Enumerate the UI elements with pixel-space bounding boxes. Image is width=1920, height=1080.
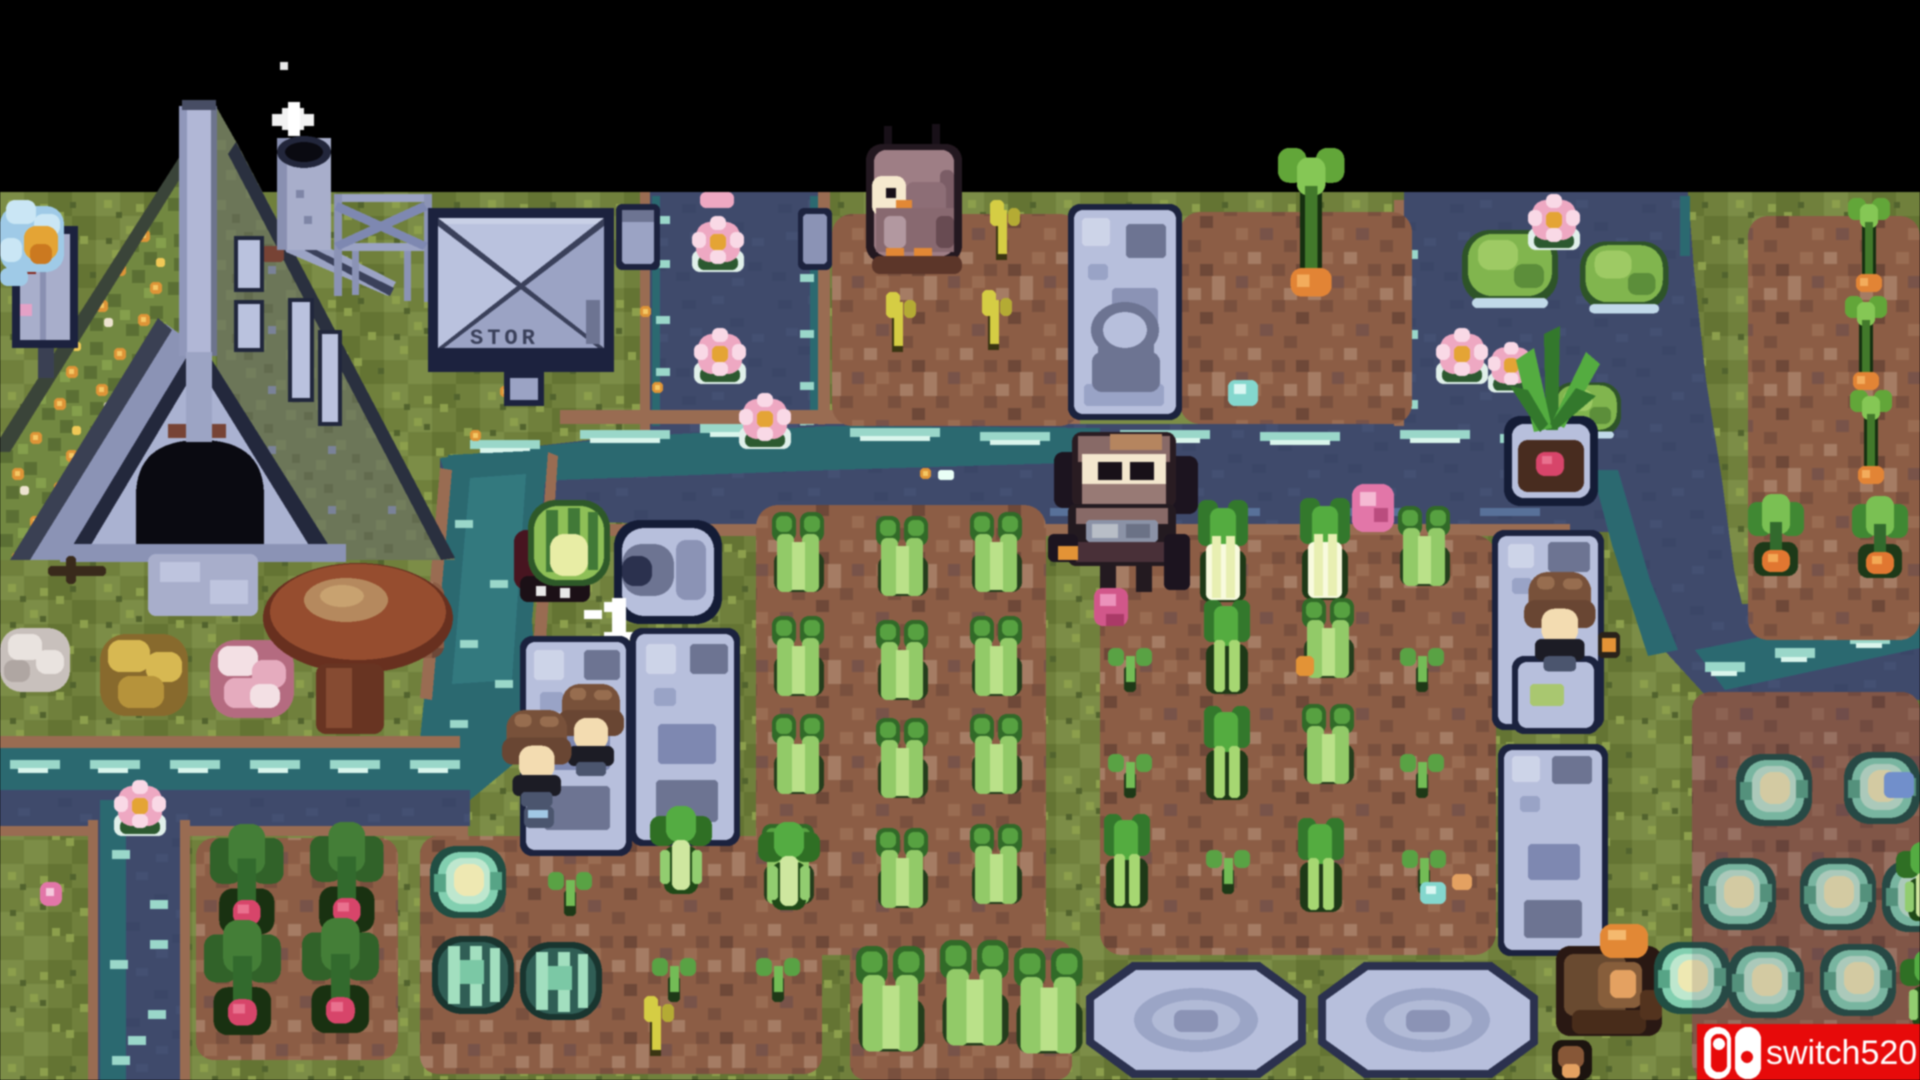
- svg-text:switch520: switch520: [1766, 1034, 1917, 1072]
- svg-text:STOR: STOR: [470, 326, 539, 351]
